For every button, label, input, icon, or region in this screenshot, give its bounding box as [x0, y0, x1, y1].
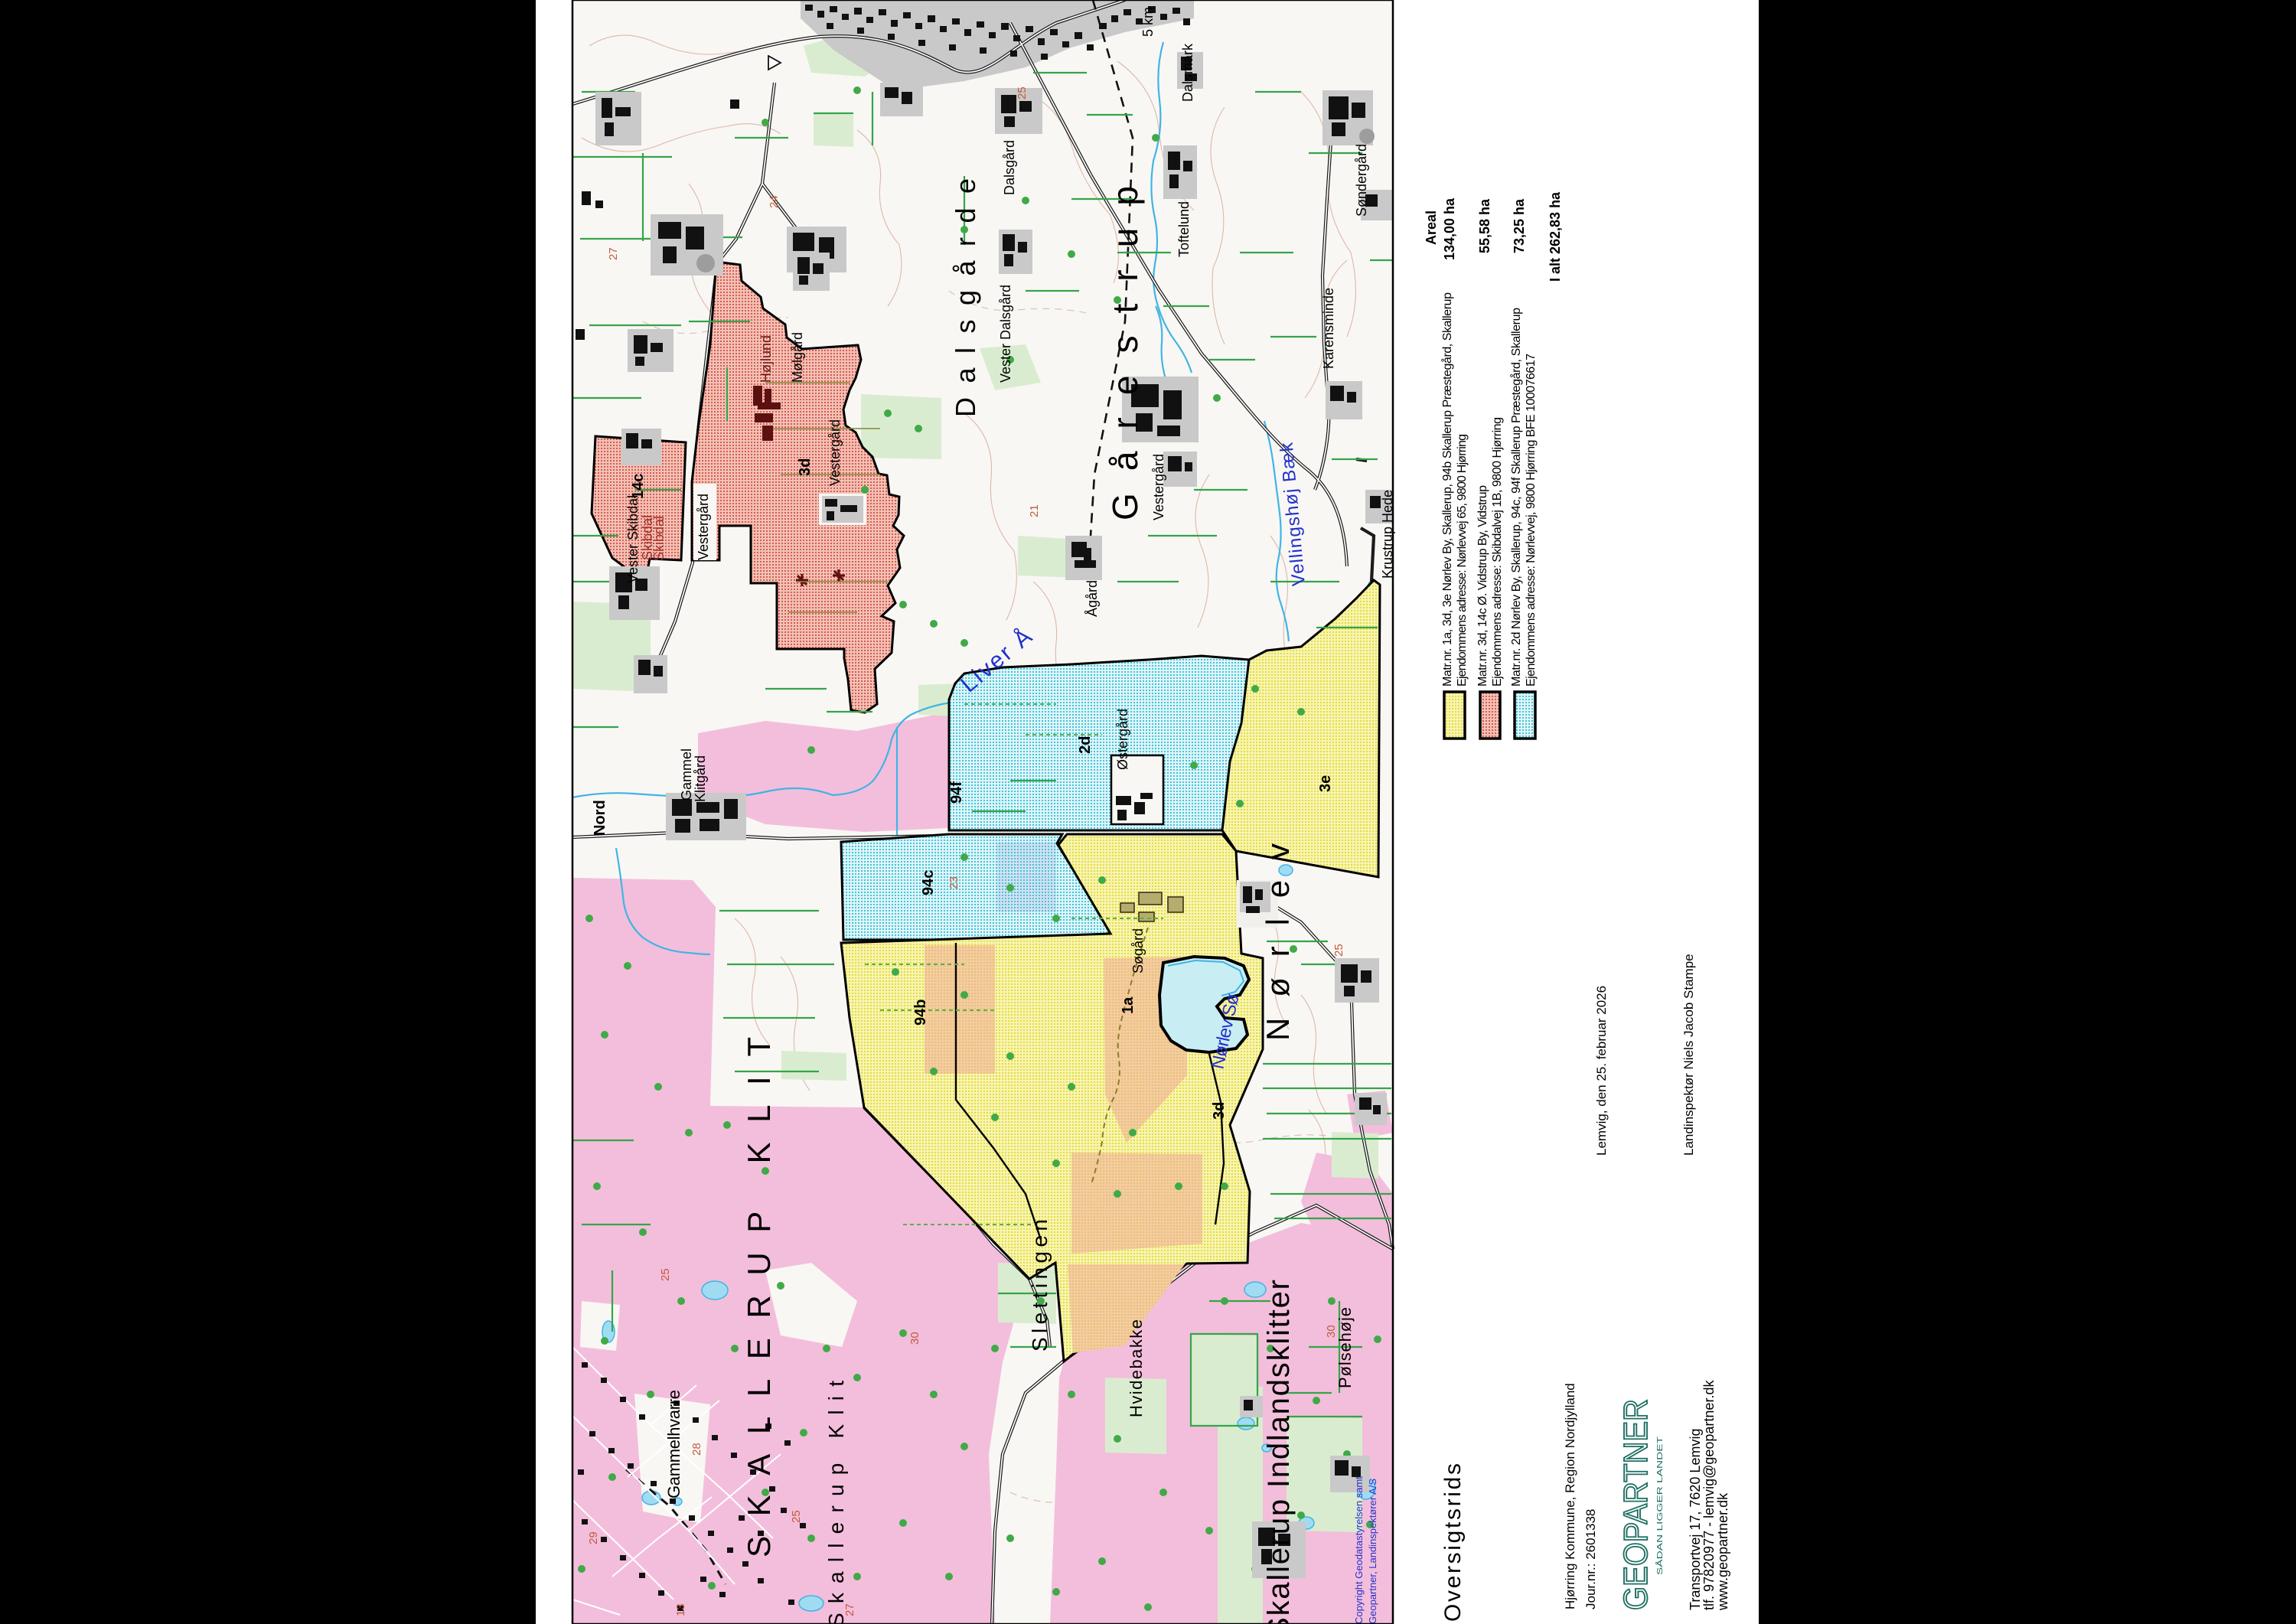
svg-text:Vestergård: Vestergård — [696, 494, 711, 560]
svg-text:5 km: 5 km — [1140, 7, 1156, 37]
svg-text:Copyright Geodatastyrelsen sam: Copyright Geodatastyrelsen samt — [1353, 1476, 1365, 1624]
svg-text:25: 25 — [790, 1510, 803, 1523]
svg-text:73,25 ha: 73,25 ha — [1512, 198, 1527, 253]
svg-text:Nord: Nord — [592, 800, 608, 836]
svg-text:Østergård: Østergård — [1115, 709, 1130, 770]
svg-text:Karensminde: Karensminde — [1321, 288, 1336, 369]
svg-text:GEOPARTNER: GEOPARTNER — [1617, 1399, 1655, 1610]
svg-text:Ejendommens adresse: Nørlevvej: Ejendommens adresse: Nørlevvej 65, 9800 … — [1456, 434, 1469, 686]
svg-text:www.geopartner.dk: www.geopartner.dk — [1715, 1492, 1730, 1611]
svg-text:Dalsmark: Dalsmark — [1180, 43, 1195, 102]
svg-text:Vester Skibdal: Vester Skibdal — [625, 495, 641, 583]
svg-text:25: 25 — [1016, 86, 1029, 99]
svg-text:Matr.nr. 1a, 3d, 3e Nørlev By,: Matr.nr. 1a, 3d, 3e Nørlev By, Skallerup… — [1440, 292, 1454, 686]
svg-text:Slettingen: Slettingen — [1028, 1217, 1052, 1352]
svg-text:3d: 3d — [797, 458, 814, 476]
svg-text:Jour.nr.: 2601338: Jour.nr.: 2601338 — [1583, 1509, 1598, 1609]
svg-text:29: 29 — [587, 1531, 600, 1544]
svg-text:Ejendommens adresse: Skibdalve: Ejendommens adresse: Skibdalvej 1B, 9800… — [1491, 417, 1504, 686]
svg-text:94f: 94f — [948, 781, 965, 804]
svg-text:Pølsehøje: Pølsehøje — [1336, 1307, 1355, 1388]
svg-text:55,58 ha: 55,58 ha — [1477, 198, 1492, 253]
svg-text:Hjørring Kommune, Region Nordj: Hjørring Kommune, Region Nordjylland — [1563, 1383, 1577, 1609]
svg-text:23: 23 — [947, 876, 960, 889]
svg-text:Søgård: Søgård — [1130, 928, 1146, 973]
svg-text:Ågård: Ågård — [1084, 580, 1100, 617]
svg-text:3d: 3d — [1211, 1102, 1228, 1120]
svg-text:Højlund: Højlund — [758, 335, 774, 383]
svg-text:Matr.nr. 3d, 14c Ø. Vidstrup B: Matr.nr. 3d, 14c Ø. Vidstrup By, Vidstru… — [1476, 485, 1489, 686]
svg-text:21: 21 — [1028, 504, 1041, 517]
svg-text:Matr.nr. 2d Nørlev By, Skaller: Matr.nr. 2d Nørlev By, Skallerup, 94c, 9… — [1509, 308, 1523, 686]
svg-text:94b: 94b — [912, 1000, 929, 1026]
svg-text:14c: 14c — [630, 474, 647, 499]
svg-text:Søndergård: Søndergård — [1354, 144, 1369, 217]
svg-text:30: 30 — [908, 1332, 921, 1345]
svg-text:Klitgård: Klitgård — [693, 755, 708, 802]
svg-text:Oversigtsrids: Oversigtsrids — [1440, 1463, 1466, 1622]
svg-text:Landinspektør Niels Jacob Stam: Landinspektør Niels Jacob Stampe — [1681, 954, 1696, 1156]
svg-text:Ejendommens adresse: Nørlevvej: Ejendommens adresse: Nørlevvej, 9800 Hjø… — [1525, 354, 1538, 686]
svg-text:Transportvej 17, 7620 Lemvig: Transportvej 17, 7620 Lemvig — [1688, 1429, 1703, 1610]
svg-text:13: 13 — [674, 1603, 687, 1616]
svg-text:Gårestrup: Gårestrup — [1105, 165, 1145, 520]
svg-text:SÅDAN LIGGER LANDET: SÅDAN LIGGER LANDET — [1655, 1436, 1665, 1575]
svg-text:1a: 1a — [1120, 996, 1137, 1014]
svg-text:30: 30 — [1325, 1325, 1338, 1338]
svg-text:I alt 262,83 ha: I alt 262,83 ha — [1548, 191, 1563, 282]
svg-text:Mølgård: Mølgård — [790, 332, 805, 383]
svg-text:Hvidebakke: Hvidebakke — [1127, 1319, 1146, 1417]
svg-text:24: 24 — [768, 195, 781, 208]
svg-text:Gammelhvarre: Gammelhvarre — [664, 1390, 683, 1498]
svg-text:27: 27 — [843, 1603, 856, 1616]
svg-text:94c: 94c — [920, 870, 937, 895]
svg-text:Areal: Areal — [1424, 210, 1439, 245]
svg-text:25: 25 — [659, 1268, 672, 1281]
svg-text:Dalsgård: Dalsgård — [1002, 140, 1017, 195]
svg-text:28: 28 — [690, 1443, 703, 1456]
svg-text:Skallerup Indlandsklitter: Skallerup Indlandsklitter — [1262, 1280, 1296, 1624]
svg-text:Vestergård: Vestergård — [827, 419, 843, 486]
svg-text:Vestergård: Vestergård — [1151, 454, 1166, 520]
svg-text:134,00 ha: 134,00 ha — [1442, 197, 1457, 260]
svg-text:Vester Dalsgård: Vester Dalsgård — [998, 285, 1013, 383]
svg-text:Gammel: Gammel — [679, 748, 694, 801]
svg-text:3e: 3e — [1317, 775, 1334, 792]
svg-text:Skibdal: Skibdal — [651, 516, 667, 561]
svg-text:27: 27 — [607, 247, 620, 260]
svg-text:Toftelund: Toftelund — [1176, 201, 1192, 257]
svg-text:25: 25 — [1332, 944, 1345, 957]
svg-text:Lemvig, den 25. februar 2026: Lemvig, den 25. februar 2026 — [1594, 986, 1609, 1156]
svg-text:Dalsgårde: Dalsgårde — [950, 165, 981, 417]
svg-text:2d: 2d — [1077, 736, 1094, 754]
svg-text:tlf. 97820977 - lemvig@geopart: tlf. 97820977 - lemvig@geopartner.dk — [1701, 1380, 1717, 1610]
svg-text:Geopartner, Landinspektører A/: Geopartner, Landinspektører A/S — [1367, 1479, 1378, 1624]
